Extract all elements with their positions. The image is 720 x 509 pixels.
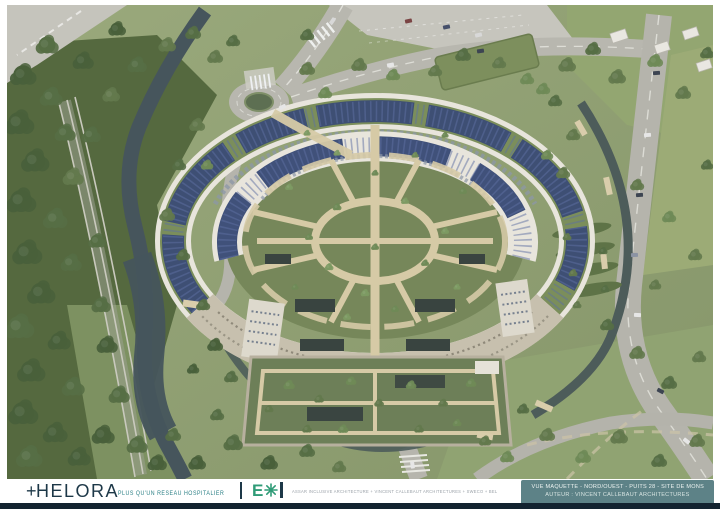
helora-wordmark: HELORA xyxy=(36,481,119,502)
consortium-logo-e: E xyxy=(252,482,263,499)
consortium-logo: E xyxy=(252,481,283,499)
caption-line1: VUE MAQUETTE - NORD/OUEST - PUITS 28 - S… xyxy=(531,484,704,491)
eight-spoke-star-icon xyxy=(264,483,278,497)
aerial-render xyxy=(7,5,713,479)
footer-divider xyxy=(240,482,242,499)
consortium-text: ASSAR INCLUSIVE ARCHITECTURE + VINCENT C… xyxy=(292,490,497,495)
helora-logo: + HELORA xyxy=(26,481,119,502)
view-caption: VUE MAQUETTE - NORD/OUEST - PUITS 28 - S… xyxy=(521,480,714,503)
helora-tagline: PLUS QU'UN RÉSEAU HOSPITALIER xyxy=(118,491,224,497)
bottom-bar xyxy=(0,503,720,509)
caption-line2: AUTEUR : VINCENT CALLEBAUT ARCHITECTURES xyxy=(545,492,689,499)
consortium-logo-bar xyxy=(280,482,283,498)
